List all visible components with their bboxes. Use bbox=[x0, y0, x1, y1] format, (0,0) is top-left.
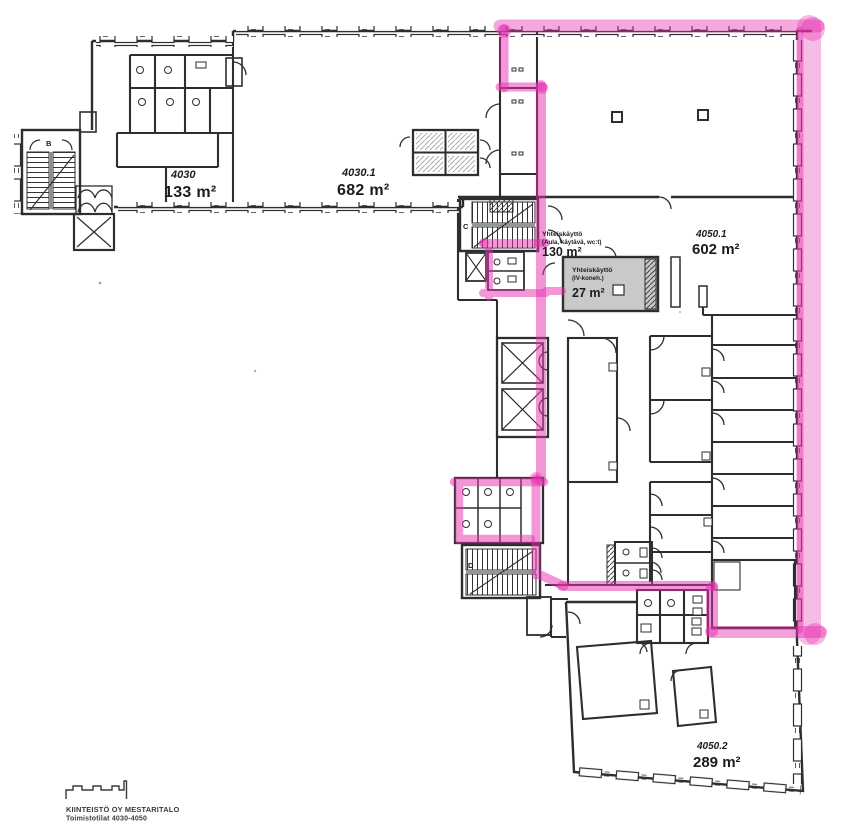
footer-subtitle: Toimistotilat 4030-4050 bbox=[66, 816, 147, 823]
unit-4050-1-id: 4050.1 bbox=[695, 229, 727, 240]
machine-room bbox=[563, 257, 707, 311]
floor-plan-drawing: 4030 133 m² 4030.1 682 m² 4050.1 602 m² … bbox=[0, 0, 854, 827]
unit-4050-2-area: 289 m² bbox=[693, 754, 741, 771]
footer-logo bbox=[66, 781, 127, 799]
unit-4030-area: 133 m² bbox=[164, 184, 217, 201]
iv-detail: (IV-koneh.) bbox=[572, 275, 604, 282]
stair-c-label: C bbox=[463, 222, 469, 231]
unit-label-4050-1: 4050.1 602 m² bbox=[692, 229, 740, 258]
unit-label-4030-1: 4030.1 682 m² bbox=[337, 167, 390, 199]
common-area-label-aula: Yhteiskäyttö (Aula, käytävä, wc:t) 130 m… bbox=[542, 231, 602, 259]
service-shaft bbox=[466, 253, 486, 281]
stair-d-label: D bbox=[468, 561, 474, 570]
window-strips bbox=[14, 26, 803, 795]
unit-4030-1-area: 682 m² bbox=[337, 182, 390, 199]
floor-plan-page: 4030 133 m² 4030.1 682 m² 4050.1 602 m² … bbox=[0, 0, 854, 827]
footer-company: KIINTEISTÖ OY MESTARITALO bbox=[66, 805, 179, 814]
aula-name: Yhteiskäyttö bbox=[542, 231, 582, 238]
unit-4050-2-id: 4050.2 bbox=[696, 741, 728, 752]
stair-b-label: B bbox=[46, 139, 52, 148]
unit-label-4050-2: 4050.2 289 m² bbox=[693, 741, 741, 771]
iv-name: Yhteiskäyttö bbox=[572, 267, 612, 274]
columns bbox=[612, 110, 708, 122]
aula-area: 130 m² bbox=[542, 245, 582, 259]
unit-4030-id: 4030 bbox=[170, 169, 196, 181]
unit-label-4030: 4030 133 m² bbox=[164, 169, 217, 201]
core-grid bbox=[413, 130, 478, 175]
unit-4050-1-area: 602 m² bbox=[692, 241, 740, 258]
unit-4030-1-id: 4030.1 bbox=[341, 167, 376, 179]
iv-area: 27 m² bbox=[572, 286, 605, 300]
